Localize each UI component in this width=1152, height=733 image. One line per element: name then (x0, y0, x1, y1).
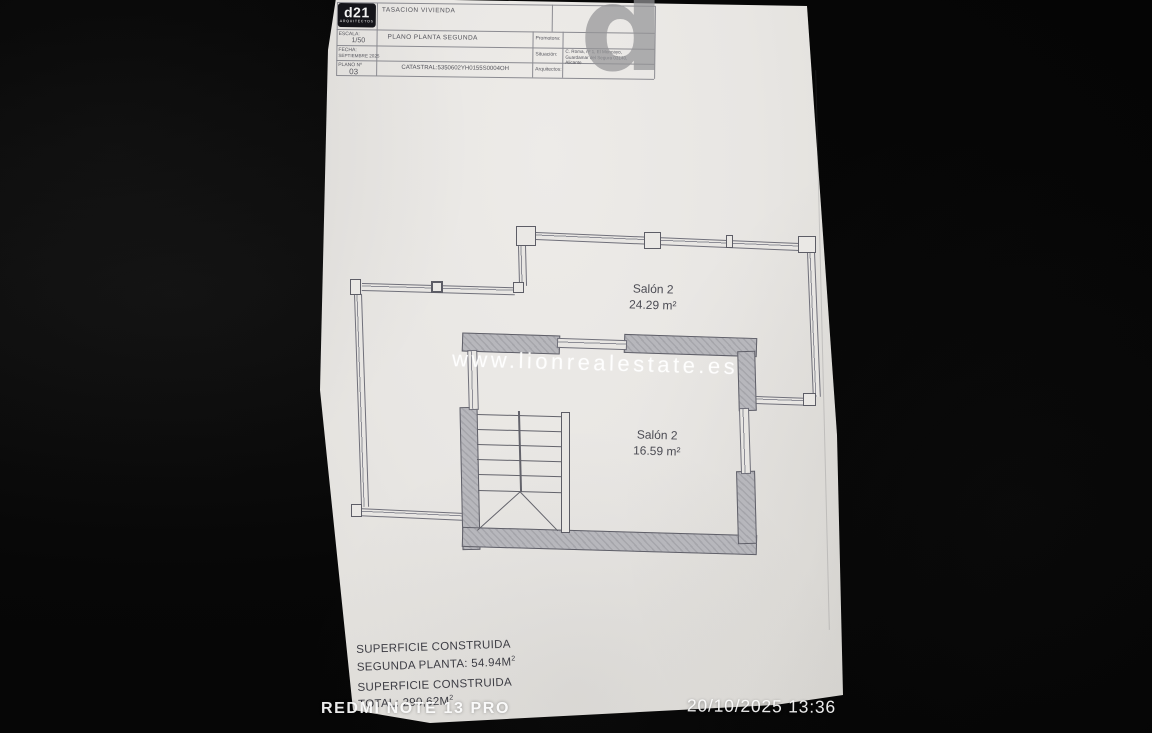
wall-right-upper (737, 351, 757, 411)
logo-text: d21 (338, 5, 376, 19)
railing-upper-left-vertical (518, 246, 527, 286)
railing-post (516, 226, 536, 246)
title-block-line (532, 31, 534, 77)
room-area: 24.29 m² (598, 296, 708, 315)
doc-title: TASACION VIVIENDA (382, 7, 455, 15)
railing-post (798, 236, 816, 253)
room-label-salon2-upper: Salón 2 24.29 m² (598, 280, 709, 315)
plano-title: PLANO PLANTA SEGUNDA (388, 34, 478, 42)
summary-text: SEGUNDA PLANTA: 54.94M (357, 656, 512, 673)
title-block: d21 ARQUITECTOS TASACION VIVIENDA ESCALA… (336, 2, 655, 81)
promotora-label: Promotora: (536, 35, 561, 41)
railing-post (644, 232, 661, 249)
room-label-salon2-lower: Salón 2 16.59 m² (602, 426, 713, 461)
arquitectos-label: Arquitectos: (535, 66, 561, 72)
wall-right-lower (736, 471, 757, 544)
window-right (739, 408, 751, 474)
room-area: 16.59 m² (602, 442, 712, 461)
situacion-line: Alicante (565, 60, 627, 66)
railing-post (351, 504, 362, 517)
escala-value: 1/50 (351, 37, 365, 44)
photo-of-floor-plan: d21 ARQUITECTOS TASACION VIVIENDA ESCALA… (0, 0, 1152, 733)
railing-joint (726, 235, 733, 248)
architect-logo: d21 ARQUITECTOS (338, 3, 376, 27)
photo-timestamp: 20/10/2025 13:36 (660, 695, 836, 718)
situacion-label: Situación: (535, 51, 557, 57)
superscript-2: 2 (511, 655, 515, 662)
railing-post (803, 393, 816, 406)
title-block-line (552, 5, 553, 32)
plano-num-value: 03 (349, 67, 358, 76)
fecha-value: SEPTIEMBRE 2025 (338, 53, 379, 59)
railing-post (350, 279, 361, 295)
camera-model-watermark: REDMI NOTE 13 PRO (321, 700, 510, 718)
railing-post (431, 281, 443, 293)
logo-subtext: ARQUITECTOS (338, 20, 376, 24)
railing-post (513, 282, 524, 293)
catastral-ref: CATASTRAL:5350602YH0155S0004OH (378, 65, 532, 73)
title-block-line (337, 29, 655, 34)
title-block-line (562, 32, 564, 78)
stair-stringer (561, 412, 570, 533)
situacion-value: C. Roma, nº 1, El Moncayo, Guardamar del… (565, 49, 627, 67)
